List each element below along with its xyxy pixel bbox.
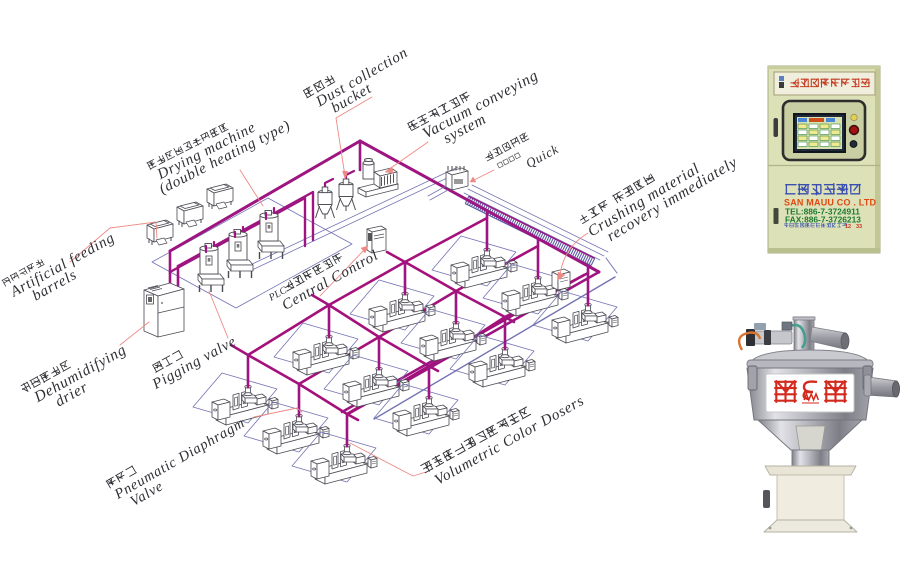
svg-text:33: 33 <box>856 224 862 230</box>
svg-text:12: 12 <box>845 224 851 230</box>
svg-text:FAX:886-7-3726213: FAX:886-7-3726213 <box>785 215 861 225</box>
